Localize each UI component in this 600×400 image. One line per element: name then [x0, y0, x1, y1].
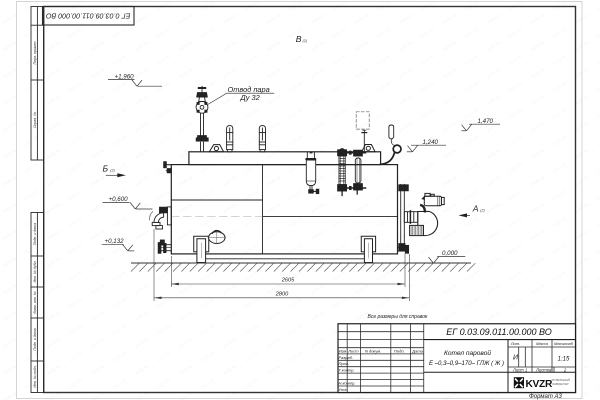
svg-text:Разраб.: Разраб.	[339, 355, 353, 360]
svg-text:N докум.: N докум.	[365, 348, 381, 353]
svg-text:Лист: Лист	[347, 348, 359, 353]
svg-text:Справ. №: Справ. №	[33, 112, 37, 128]
svg-text:Пров.: Пров.	[339, 361, 350, 366]
svg-text:Лист: Лист	[512, 367, 524, 372]
svg-text:Утв.: Утв.	[339, 387, 348, 392]
svg-text:0,000: 0,000	[442, 250, 458, 257]
svg-text:ЕГ 0.03.09.011.00.000 ВО: ЕГ 0.03.09.011.00.000 ВО	[446, 327, 552, 337]
svg-text:KVZR: KVZR	[526, 379, 553, 390]
svg-text:Взам. инв. №: Взам. инв. №	[33, 291, 37, 313]
svg-text:+0,600: +0,600	[109, 196, 129, 203]
svg-text:1:15: 1:15	[558, 357, 570, 363]
svg-text:Инв. № подл.: Инв. № подл.	[33, 365, 37, 387]
svg-text:Б: Б	[103, 163, 109, 173]
svg-text:А: А	[472, 203, 479, 213]
svg-text:Формат А3: Формат А3	[529, 394, 562, 400]
svg-text:ЕГ 0.03.09.011.00.000 ВО: ЕГ 0.03.09.011.00.000 ВО	[46, 11, 131, 20]
svg-text:Листов: Листов	[535, 367, 552, 372]
svg-text:Е –0,3–0,9–170– ГЛЖ ( Ж ): Е –0,3–0,9–170– ГЛЖ ( Ж )	[429, 360, 504, 367]
svg-text:Перв. примен.: Перв. примен.	[33, 41, 37, 65]
svg-text:Инв. № дубл.: Инв. № дубл.	[33, 260, 37, 282]
svg-text:(2): (2)	[480, 209, 484, 213]
svg-text:Масштаб: Масштаб	[554, 341, 573, 346]
svg-text:+0,132: +0,132	[105, 238, 125, 245]
svg-text:Дата: Дата	[411, 348, 423, 353]
svg-text:Все размеры для справок: Все размеры для справок	[368, 314, 429, 320]
svg-text:Ду 32: Ду 32	[240, 93, 260, 102]
svg-text:2800: 2800	[275, 292, 289, 298]
svg-text:Котел паровой: Котел паровой	[444, 349, 491, 357]
svg-text:Изм: Изм	[339, 348, 347, 353]
svg-text:Подп. и дата: Подп. и дата	[33, 223, 37, 246]
svg-text:(2): (2)	[303, 39, 307, 43]
svg-text:Н.контр.: Н.контр.	[339, 381, 356, 386]
svg-text:В: В	[296, 34, 302, 44]
svg-text:1: 1	[525, 367, 527, 372]
svg-text:Лит.: Лит.	[510, 341, 520, 346]
svg-text:Т.контр.: Т.контр.	[339, 368, 355, 373]
svg-text:ЗАВОД РЭР: ЗАВОД РЭР	[552, 382, 568, 386]
svg-text:(2): (2)	[110, 169, 114, 173]
svg-text:Подп. и дата: Подп. и дата	[33, 328, 37, 351]
svg-text:2605: 2605	[281, 278, 295, 284]
svg-text:Подп.: Подп.	[394, 348, 405, 353]
svg-text:Масса: Масса	[536, 341, 549, 346]
